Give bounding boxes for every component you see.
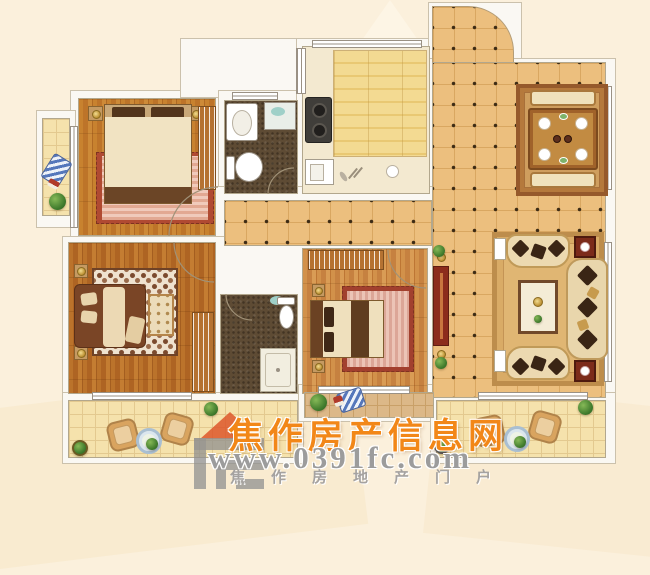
bed-blanket	[103, 287, 125, 347]
plant-icon	[49, 193, 66, 210]
sink-vanity	[226, 103, 258, 141]
decor-plate	[580, 366, 590, 376]
sofa-cushion	[577, 265, 598, 286]
sofa-cushion	[547, 239, 565, 257]
plant-icon	[310, 394, 327, 411]
sofa-cushion	[530, 355, 547, 372]
nightstand	[88, 106, 103, 121]
pillow	[80, 292, 98, 306]
master-wardrobe	[198, 106, 216, 190]
plate	[386, 165, 399, 178]
nightstand	[312, 360, 325, 373]
sofa-cushion	[530, 243, 547, 260]
toilet-tank	[277, 297, 295, 305]
living-room-balcony-window	[478, 392, 588, 400]
stove	[305, 97, 332, 143]
walls-shaft-block	[180, 38, 304, 98]
nightstand	[74, 346, 88, 360]
plant-icon	[435, 357, 447, 369]
table-plant-icon	[146, 438, 158, 450]
garnish-dish	[559, 113, 568, 120]
lamp-icon	[77, 349, 86, 358]
kitchen-floor	[333, 50, 427, 157]
sofa-cushion	[577, 297, 598, 318]
plant-icon	[433, 245, 445, 257]
pillow	[124, 316, 145, 345]
bedside-bench	[148, 294, 174, 336]
towel	[271, 107, 285, 116]
balcony-table	[504, 426, 530, 452]
blanket-fold	[105, 187, 191, 203]
nightstand	[74, 264, 88, 278]
plate	[538, 117, 551, 130]
sofa-cushion	[511, 357, 529, 375]
corridor-floor	[224, 200, 432, 246]
sink-basin	[232, 110, 252, 136]
second-bedroom-window	[92, 392, 192, 400]
pipe-shaft	[296, 48, 306, 94]
side-table-red	[574, 236, 596, 258]
plate	[575, 117, 588, 130]
balcony-table	[136, 428, 162, 454]
pillow	[324, 332, 334, 352]
pillow	[80, 310, 97, 324]
shower-tray	[260, 348, 296, 392]
toilet-bowl	[279, 305, 294, 329]
bowl	[553, 135, 561, 143]
kitchen-sink	[305, 159, 334, 185]
side-table-red	[574, 360, 596, 382]
tv-cabinet	[433, 266, 449, 346]
master-bedroom-balcony-window	[70, 126, 78, 228]
sink-inner	[310, 164, 324, 181]
table-plant-icon	[514, 436, 526, 448]
kitchen-window	[312, 40, 422, 48]
second-bed	[74, 284, 146, 348]
blanket-fold	[351, 301, 369, 357]
page: { "image_type": "apartment-floor-plan-re…	[0, 0, 650, 489]
plant-icon	[204, 402, 218, 416]
lamp-icon	[92, 110, 101, 119]
tv-cabinet-slot	[440, 273, 443, 339]
sofa-cushion	[577, 329, 598, 350]
table-decor	[533, 297, 543, 307]
dining-bench	[530, 172, 596, 188]
second-wardrobe	[192, 312, 214, 392]
dining-bench	[530, 90, 596, 106]
plate	[538, 148, 551, 161]
potted-plant-icon	[72, 440, 88, 456]
end-table	[494, 238, 506, 260]
third-bed	[310, 300, 384, 358]
main-sofa	[566, 258, 608, 360]
lamp-icon	[77, 267, 86, 276]
toilet-bowl	[235, 152, 263, 182]
coffee-table	[518, 280, 558, 334]
nightstand	[312, 284, 325, 297]
potted-plant-icon	[434, 438, 450, 454]
burner-icon	[312, 103, 327, 118]
logo-bar	[216, 460, 226, 489]
third-wardrobe	[308, 250, 384, 270]
floor-plan: 焦作房产信息网 www.0391fc.com 焦作房地产门户	[0, 0, 650, 489]
lamp-icon	[315, 287, 323, 295]
duvet	[105, 117, 191, 187]
dining-table	[528, 108, 598, 170]
shower-tray	[264, 102, 296, 130]
garnish-dish	[559, 157, 568, 164]
burner-icon	[312, 123, 327, 138]
headboard	[311, 301, 323, 357]
bathroom1-window	[232, 92, 278, 100]
end-table	[494, 350, 506, 372]
toilet-tank	[226, 156, 235, 180]
bowl	[564, 135, 572, 143]
watermark-tagline: 焦作房地产门户	[230, 466, 517, 487]
sofa-cushion	[511, 239, 529, 257]
master-bed	[104, 104, 192, 204]
third-bedroom-window	[318, 386, 410, 394]
lamp-icon	[315, 363, 323, 371]
pillow	[324, 307, 334, 327]
table-plant-icon	[534, 315, 542, 323]
plant-icon	[578, 400, 593, 415]
decor-plate	[580, 242, 590, 252]
loveseat	[506, 346, 570, 380]
drain-icon	[276, 368, 280, 372]
loveseat	[506, 234, 570, 268]
sofa-cushion	[547, 357, 565, 375]
logo-bar	[236, 479, 264, 489]
plate	[575, 148, 588, 161]
